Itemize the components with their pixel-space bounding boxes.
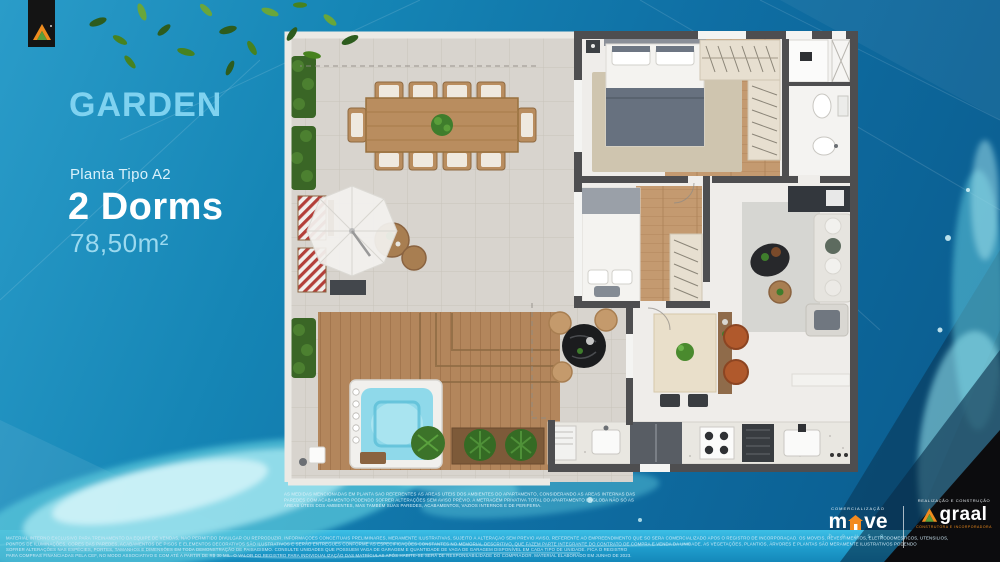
move-word-start: m xyxy=(828,511,847,533)
dorms-label: 2 Dorms xyxy=(68,186,224,229)
footer-divider xyxy=(903,506,904,548)
graal-name: graal xyxy=(940,506,988,523)
plan-type-label: Planta Tipo A2 xyxy=(70,166,171,183)
caption-line: ÁREAS ÚTEIS DOS AMBIENTES, MAS TAMBÉM SU… xyxy=(284,504,745,510)
page-title: GARDEN xyxy=(69,86,222,125)
graal-triangle-icon xyxy=(921,507,938,523)
graal-logo: REALIZAÇÃO E CONSTRUÇÃO graal CONSTRUTOR… xyxy=(908,498,1000,529)
slide: GARDEN Planta Tipo A2 2 Dorms 78,50m² AS… xyxy=(0,0,1000,562)
graal-sub-label: CONSTRUTORA E INCORPORADORA xyxy=(908,525,1000,529)
graal-top-label: REALIZAÇÃO E CONSTRUÇÃO xyxy=(908,498,1000,503)
corner-wedge xyxy=(0,0,1000,562)
graal-triangle-icon xyxy=(32,23,52,41)
move-logo: COMERCIALIZAÇÃO m ve h o u s e xyxy=(818,506,898,540)
area-label: 78,50m² xyxy=(70,228,169,259)
house-icon xyxy=(848,515,863,530)
move-word-end: ve xyxy=(864,511,887,533)
brand-badge xyxy=(28,0,55,47)
disclaimer-line: PARA COMPRAS FINANCIADAS PELA CEF, NO MO… xyxy=(6,553,1000,559)
move-sub-label: h o u s e xyxy=(818,534,898,540)
plan-caption: AS MEDIDAS MENCIONADAS EM PLANTA SÃO REF… xyxy=(284,492,745,509)
